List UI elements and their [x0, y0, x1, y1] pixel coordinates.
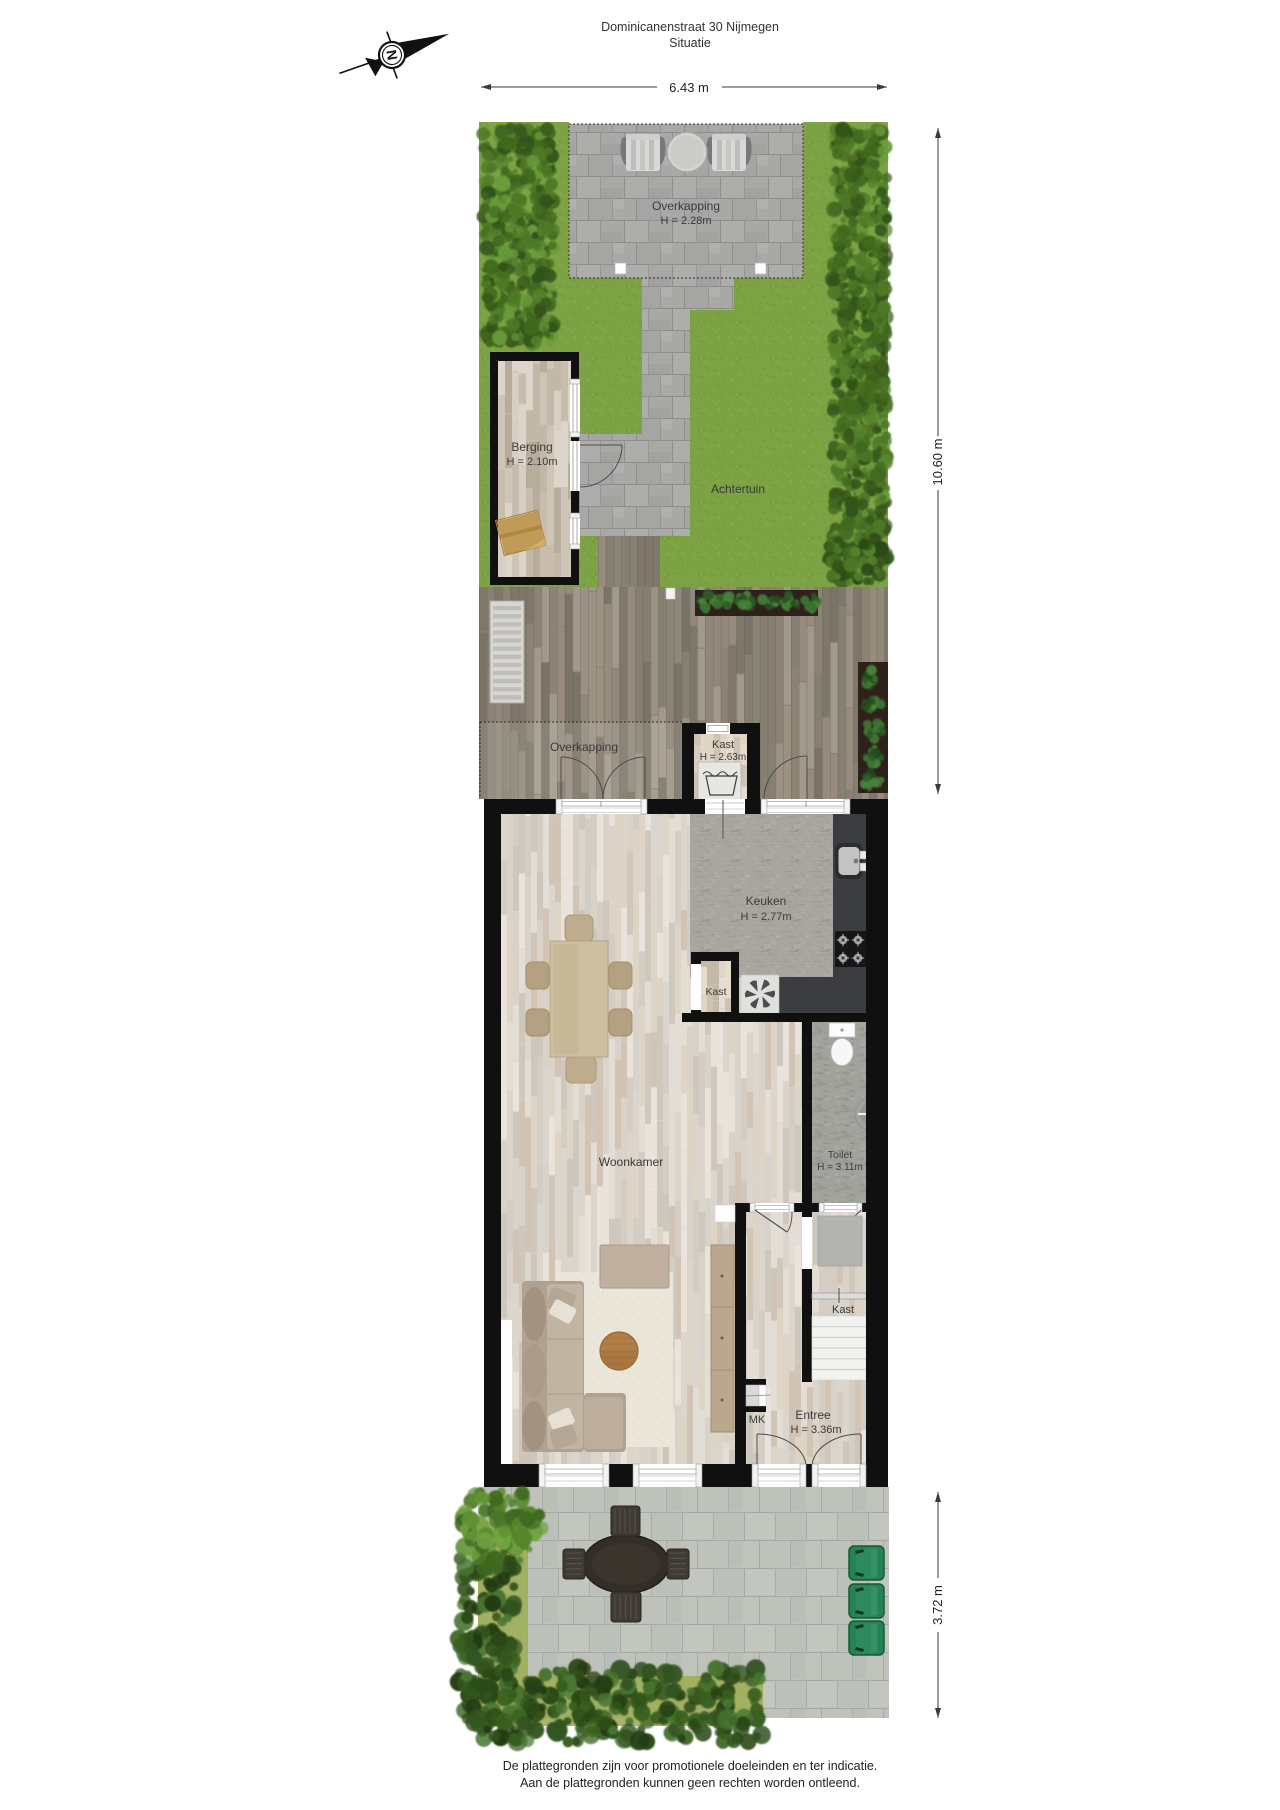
- svg-text:Achtertuin: Achtertuin: [711, 482, 765, 496]
- svg-text:Berging: Berging: [511, 440, 552, 454]
- svg-text:H = 2.63m: H = 2.63m: [700, 752, 746, 763]
- svg-text:Woonkamer: Woonkamer: [599, 1155, 663, 1169]
- svg-text:Kast: Kast: [832, 1304, 854, 1316]
- svg-text:H = 2.28m: H = 2.28m: [660, 215, 711, 227]
- svg-text:Overkapping: Overkapping: [652, 199, 720, 213]
- svg-text:MK: MK: [749, 1414, 766, 1426]
- svg-text:Kast: Kast: [712, 739, 734, 751]
- svg-text:H = 2.10m: H = 2.10m: [506, 456, 557, 468]
- svg-text:Kast: Kast: [705, 986, 726, 998]
- svg-text:H = 3.36m: H = 3.36m: [790, 1424, 841, 1436]
- svg-text:Keuken: Keuken: [746, 894, 787, 908]
- svg-text:Dominicanenstraat 30 Nijmegen: Dominicanenstraat 30 Nijmegen: [601, 20, 779, 34]
- svg-text:6.43 m: 6.43 m: [669, 80, 709, 95]
- svg-text:Entree: Entree: [795, 1408, 831, 1422]
- svg-text:Toilet: Toilet: [828, 1149, 853, 1161]
- svg-text:De plattegronden zijn voor pro: De plattegronden zijn voor promotionele …: [503, 1759, 878, 1773]
- svg-text:H = 3.11m: H = 3.11m: [817, 1162, 863, 1173]
- svg-text:Overkapping: Overkapping: [550, 740, 618, 754]
- svg-text:Aan de plattegronden kunnen ge: Aan de plattegronden kunnen geen rechten…: [520, 1776, 860, 1790]
- svg-text:H = 2.77m: H = 2.77m: [740, 911, 791, 923]
- svg-text:3.72 m: 3.72 m: [930, 1585, 945, 1625]
- svg-text:10.60 m: 10.60 m: [930, 439, 945, 486]
- svg-text:Situatie: Situatie: [669, 36, 711, 50]
